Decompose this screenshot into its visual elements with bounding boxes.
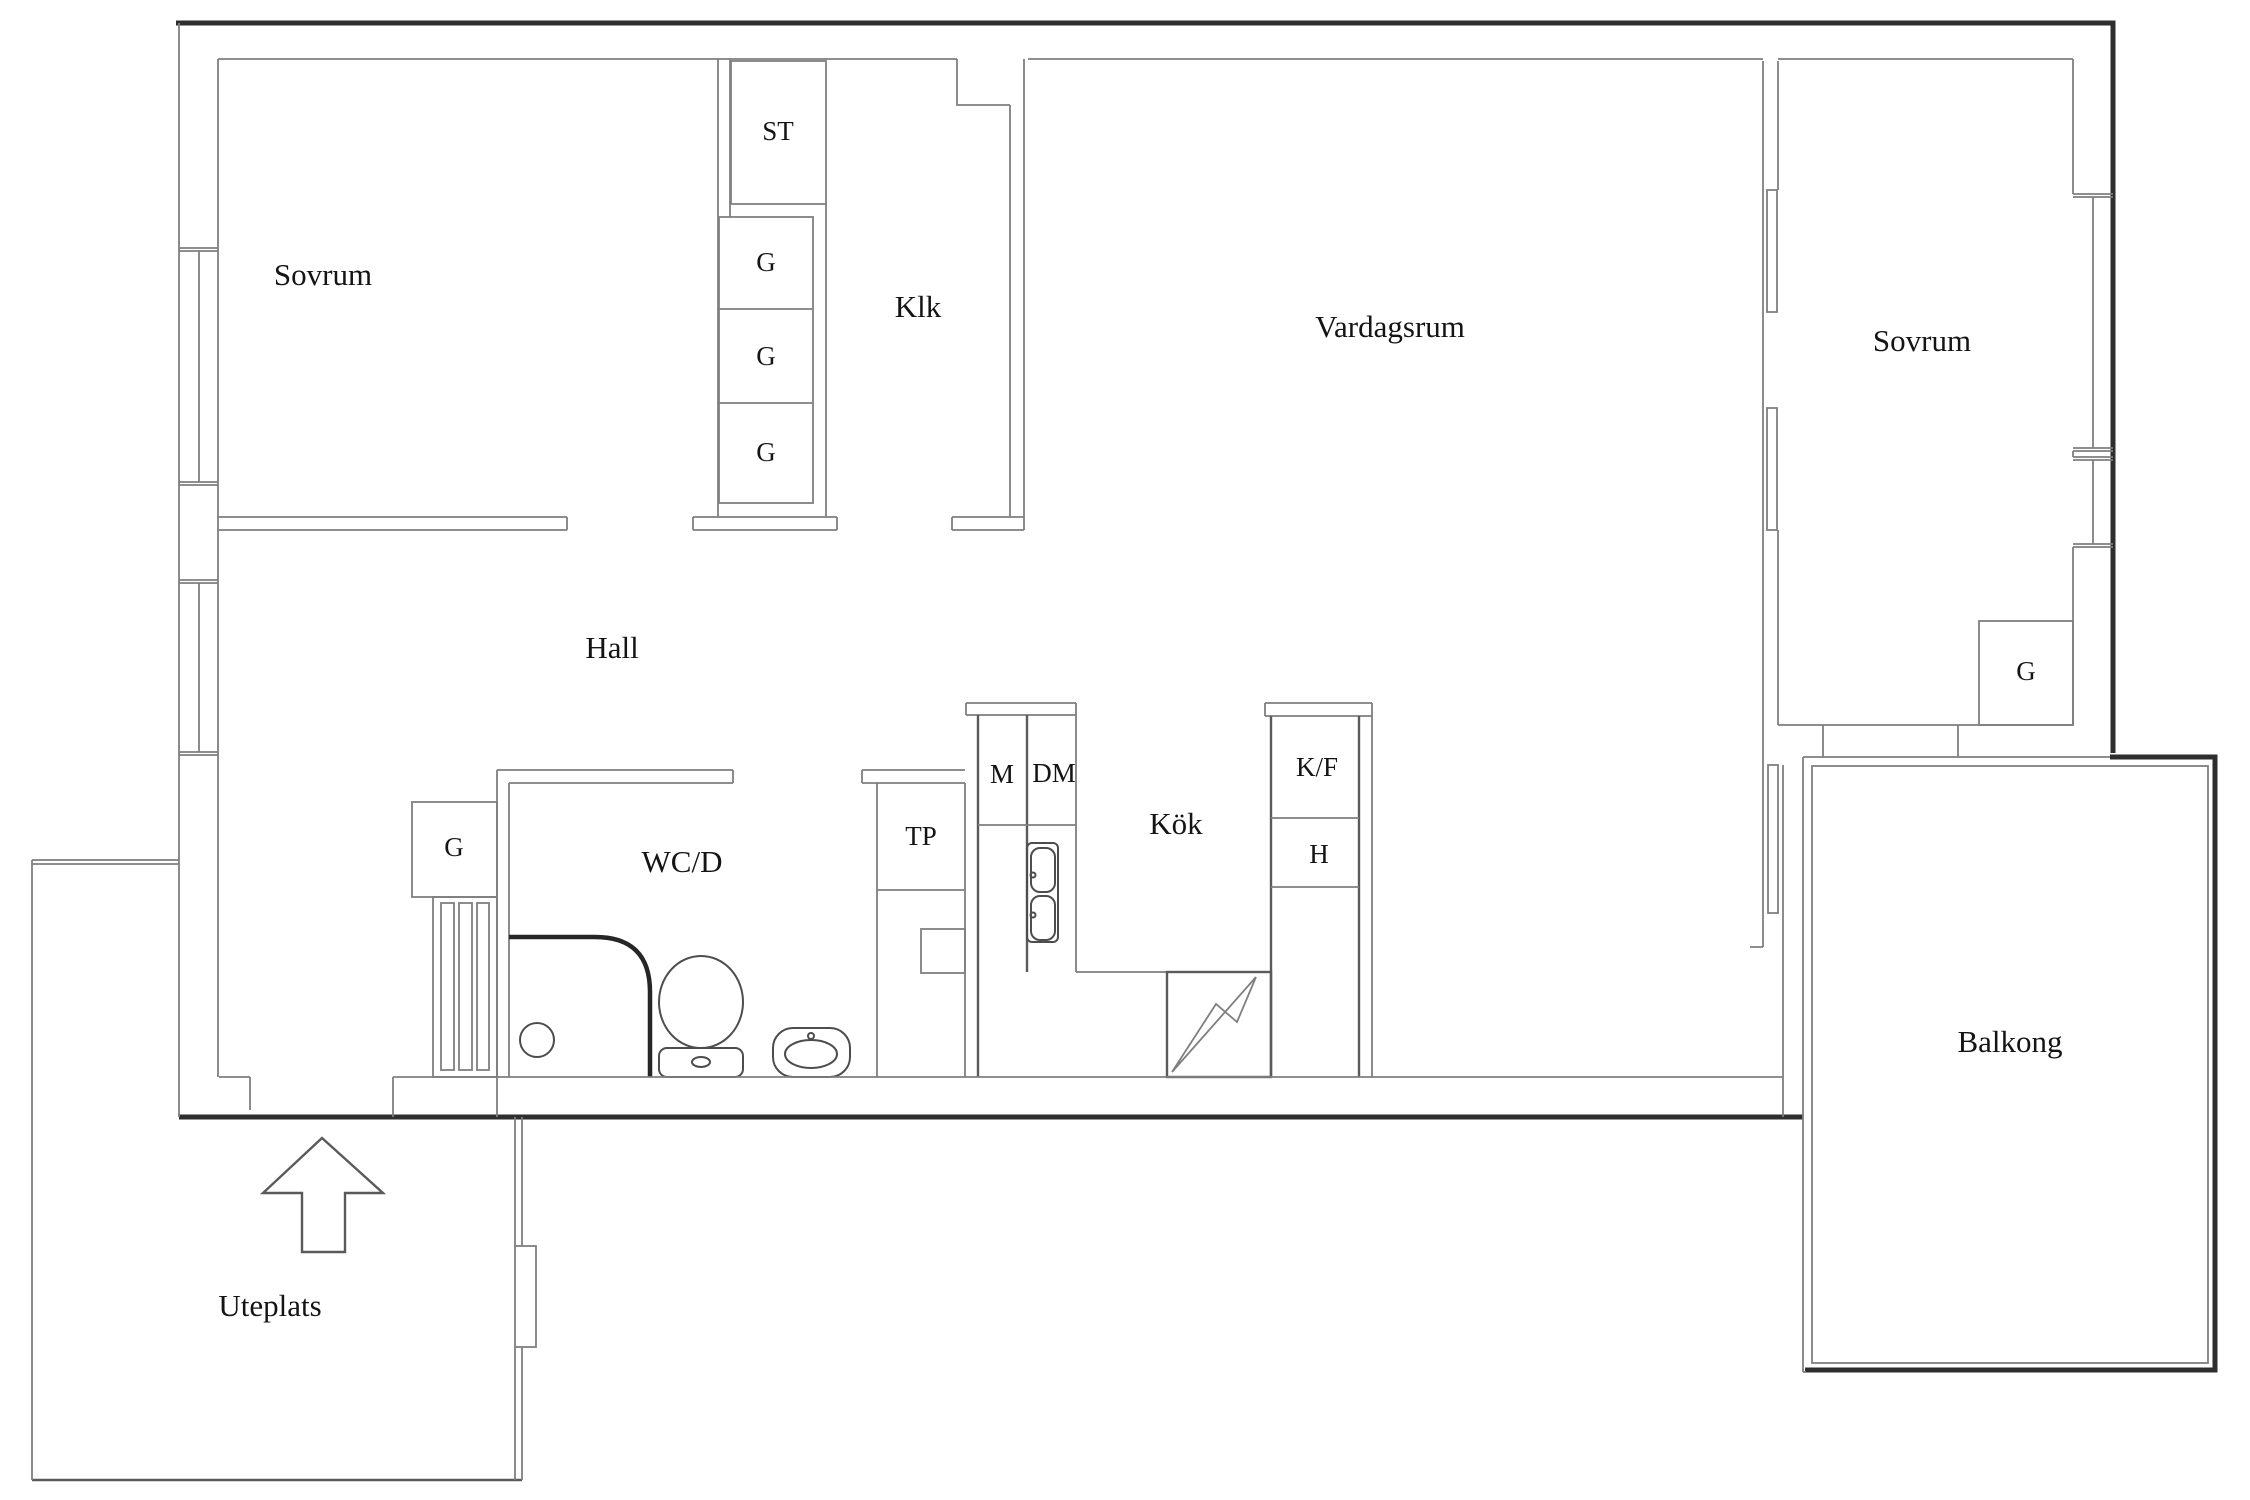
window-left-upper [179, 248, 218, 485]
uteplats-fence-top [32, 860, 179, 864]
window-right-upper [2073, 194, 2113, 451]
closet-label-g2: G [756, 341, 776, 371]
exterior-walls [32, 23, 2215, 1480]
wcd-left-wall [497, 770, 509, 1117]
shower [509, 937, 650, 1077]
wcd-top-wall [497, 770, 733, 783]
kitchen-sink [1027, 843, 1058, 942]
closet-column-footer-wall [693, 517, 837, 530]
balcony-door-leaf [1768, 765, 1778, 913]
balcony-left-top-thin [1803, 757, 2110, 1372]
room-label-sovrum-left: Sovrum [274, 257, 372, 292]
toilet-bowl [659, 956, 743, 1048]
left-wall [179, 23, 218, 1117]
balcony-inner-line [1812, 766, 2208, 1363]
uteplats-fence-right [515, 1117, 522, 1480]
closet-label-dm: DM [1032, 758, 1076, 788]
floor-plan-svg: Sovrum ST G G G Klk Vardagsrum Sovrum Ha… [0, 0, 2250, 1500]
shower-drain [520, 1023, 554, 1057]
klk-top-step [957, 59, 1010, 105]
room-sovrum-left [218, 59, 730, 530]
divider-vardagsrum-sovrum [1750, 61, 1778, 947]
window-left-lower [179, 580, 218, 755]
closet-label-h: H [1309, 839, 1329, 869]
stove-lightning-symbol [1172, 977, 1256, 1072]
cabinet-slat-2 [459, 903, 472, 1070]
room-label-hall: Hall [585, 630, 638, 665]
double-door-leaf-lower [1767, 408, 1777, 530]
closet-label-tp: TP [905, 821, 937, 851]
room-sovrum-right [1778, 59, 2113, 757]
uteplats-fence-opening [515, 1246, 536, 1347]
bathroom-sink-tap [808, 1033, 814, 1039]
toilet-tank [659, 1048, 743, 1077]
sink-bowl-upper [1031, 848, 1055, 892]
closet-label-g1: G [756, 247, 776, 277]
tp-inner-box [921, 929, 965, 973]
kitchen-counter-lines [978, 703, 1167, 972]
toilet [659, 956, 743, 1077]
entrance-arrow-icon [263, 1138, 383, 1252]
kitchen-top-wall-right [1265, 703, 1372, 716]
sink-tap-dot-1 [1031, 873, 1036, 878]
stove [1167, 972, 1271, 1077]
bathroom-sink-basin [785, 1040, 837, 1068]
entrance-jamb-left [219, 1077, 250, 1110]
balcony-outer-wall [1805, 757, 2215, 1370]
double-door-leaf-upper [1767, 190, 1777, 312]
room-label-uteplats: Uteplats [218, 1288, 321, 1323]
tp-column [862, 770, 965, 1077]
cabinet-slat-3 [477, 903, 489, 1070]
cabinet-slat-1 [441, 903, 454, 1070]
floor-plan-page: Sovrum ST G G G Klk Vardagsrum Sovrum Ha… [0, 0, 2250, 1500]
bathroom-sink [773, 1028, 850, 1077]
window-right-lower [2073, 457, 2113, 547]
uteplats [32, 860, 536, 1480]
divider-left-line [1750, 61, 1763, 947]
closet-label-g-sovrum: G [2016, 656, 2036, 686]
toilet-button [692, 1057, 710, 1067]
sink-tap-dot-2 [1031, 913, 1036, 918]
bottom-wall [219, 1077, 1783, 1117]
room-label-sovrum-right: Sovrum [1873, 323, 1971, 358]
sovrum-right-bottom-wall [1778, 725, 2073, 757]
outer-wall-top-right [176, 23, 2113, 753]
closet-label-st: ST [762, 116, 794, 146]
room-wcd [497, 770, 850, 1117]
slatted-cabinet [433, 897, 497, 1077]
room-label-balkong: Balkong [1957, 1024, 2062, 1059]
balcony [1768, 757, 2208, 1372]
tp-top-wall [862, 770, 965, 783]
kitchen-top-wall-left [966, 703, 1076, 715]
room-label-kok: Kök [1149, 806, 1203, 841]
closet-label-g-hall: G [444, 832, 464, 862]
room-label-vardagsrum: Vardagsrum [1315, 309, 1465, 344]
closet-label-m: M [990, 759, 1014, 789]
labels: Sovrum ST G G G Klk Vardagsrum Sovrum Ha… [218, 116, 2062, 1323]
sovrum-left-bottom-wall [218, 517, 567, 530]
closet-label-kf: K/F [1296, 752, 1338, 782]
room-label-klk: Klk [895, 289, 942, 324]
klk-footer-wall [952, 517, 1024, 530]
closet-label-g3: G [756, 437, 776, 467]
room-label-wcd: WC/D [642, 844, 723, 879]
